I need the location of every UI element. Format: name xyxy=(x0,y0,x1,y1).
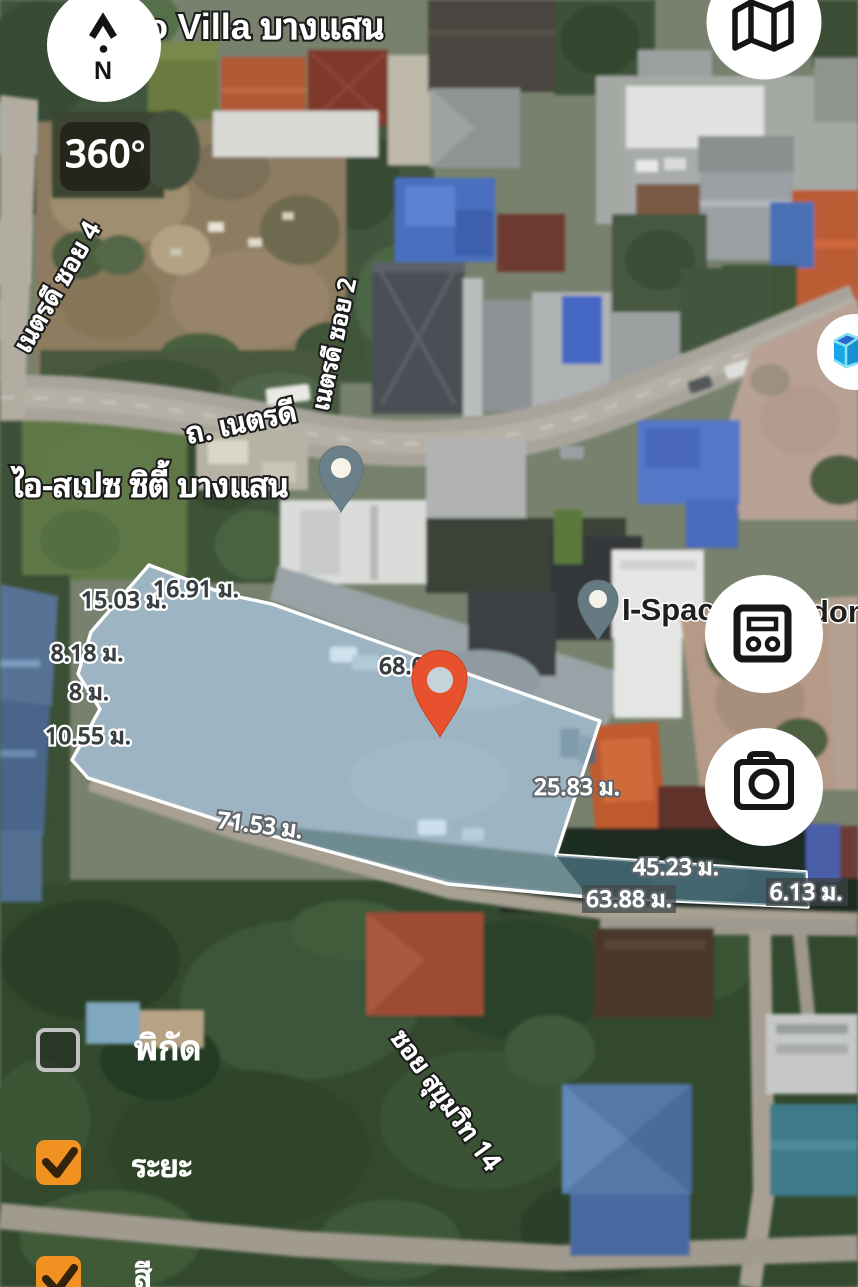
svg-text:พิกัด: พิกัด xyxy=(134,1017,202,1072)
svg-text:6.13 ม.: 6.13 ม. xyxy=(770,872,843,909)
svg-text:25.83 ม.: 25.83 ม. xyxy=(534,767,620,804)
svg-text:o Villa บางแสน: o Villa บางแสน xyxy=(146,0,385,52)
svg-text:8 ม.: 8 ม. xyxy=(69,672,109,709)
svg-text:16.91 ม.: 16.91 ม. xyxy=(153,569,239,606)
svg-text:N: N xyxy=(94,48,112,88)
svg-text:10.55 ม.: 10.55 ม. xyxy=(45,716,131,753)
svg-text:63.88 ม.: 63.88 ม. xyxy=(586,879,672,916)
svg-text:ระยะ: ระยะ xyxy=(131,1138,192,1188)
svg-text:I-Spac: I-Spac xyxy=(622,581,715,631)
svg-text:ไอ-สเปซ ซิตี้ บางแสน: ไอ-สเปซ ซิตี้ บางแสน xyxy=(10,456,289,509)
svg-text:8.18 ม.: 8.18 ม. xyxy=(51,633,124,670)
svg-text:360°: 360° xyxy=(65,120,146,181)
svg-text:สี: สี xyxy=(134,1248,153,1287)
